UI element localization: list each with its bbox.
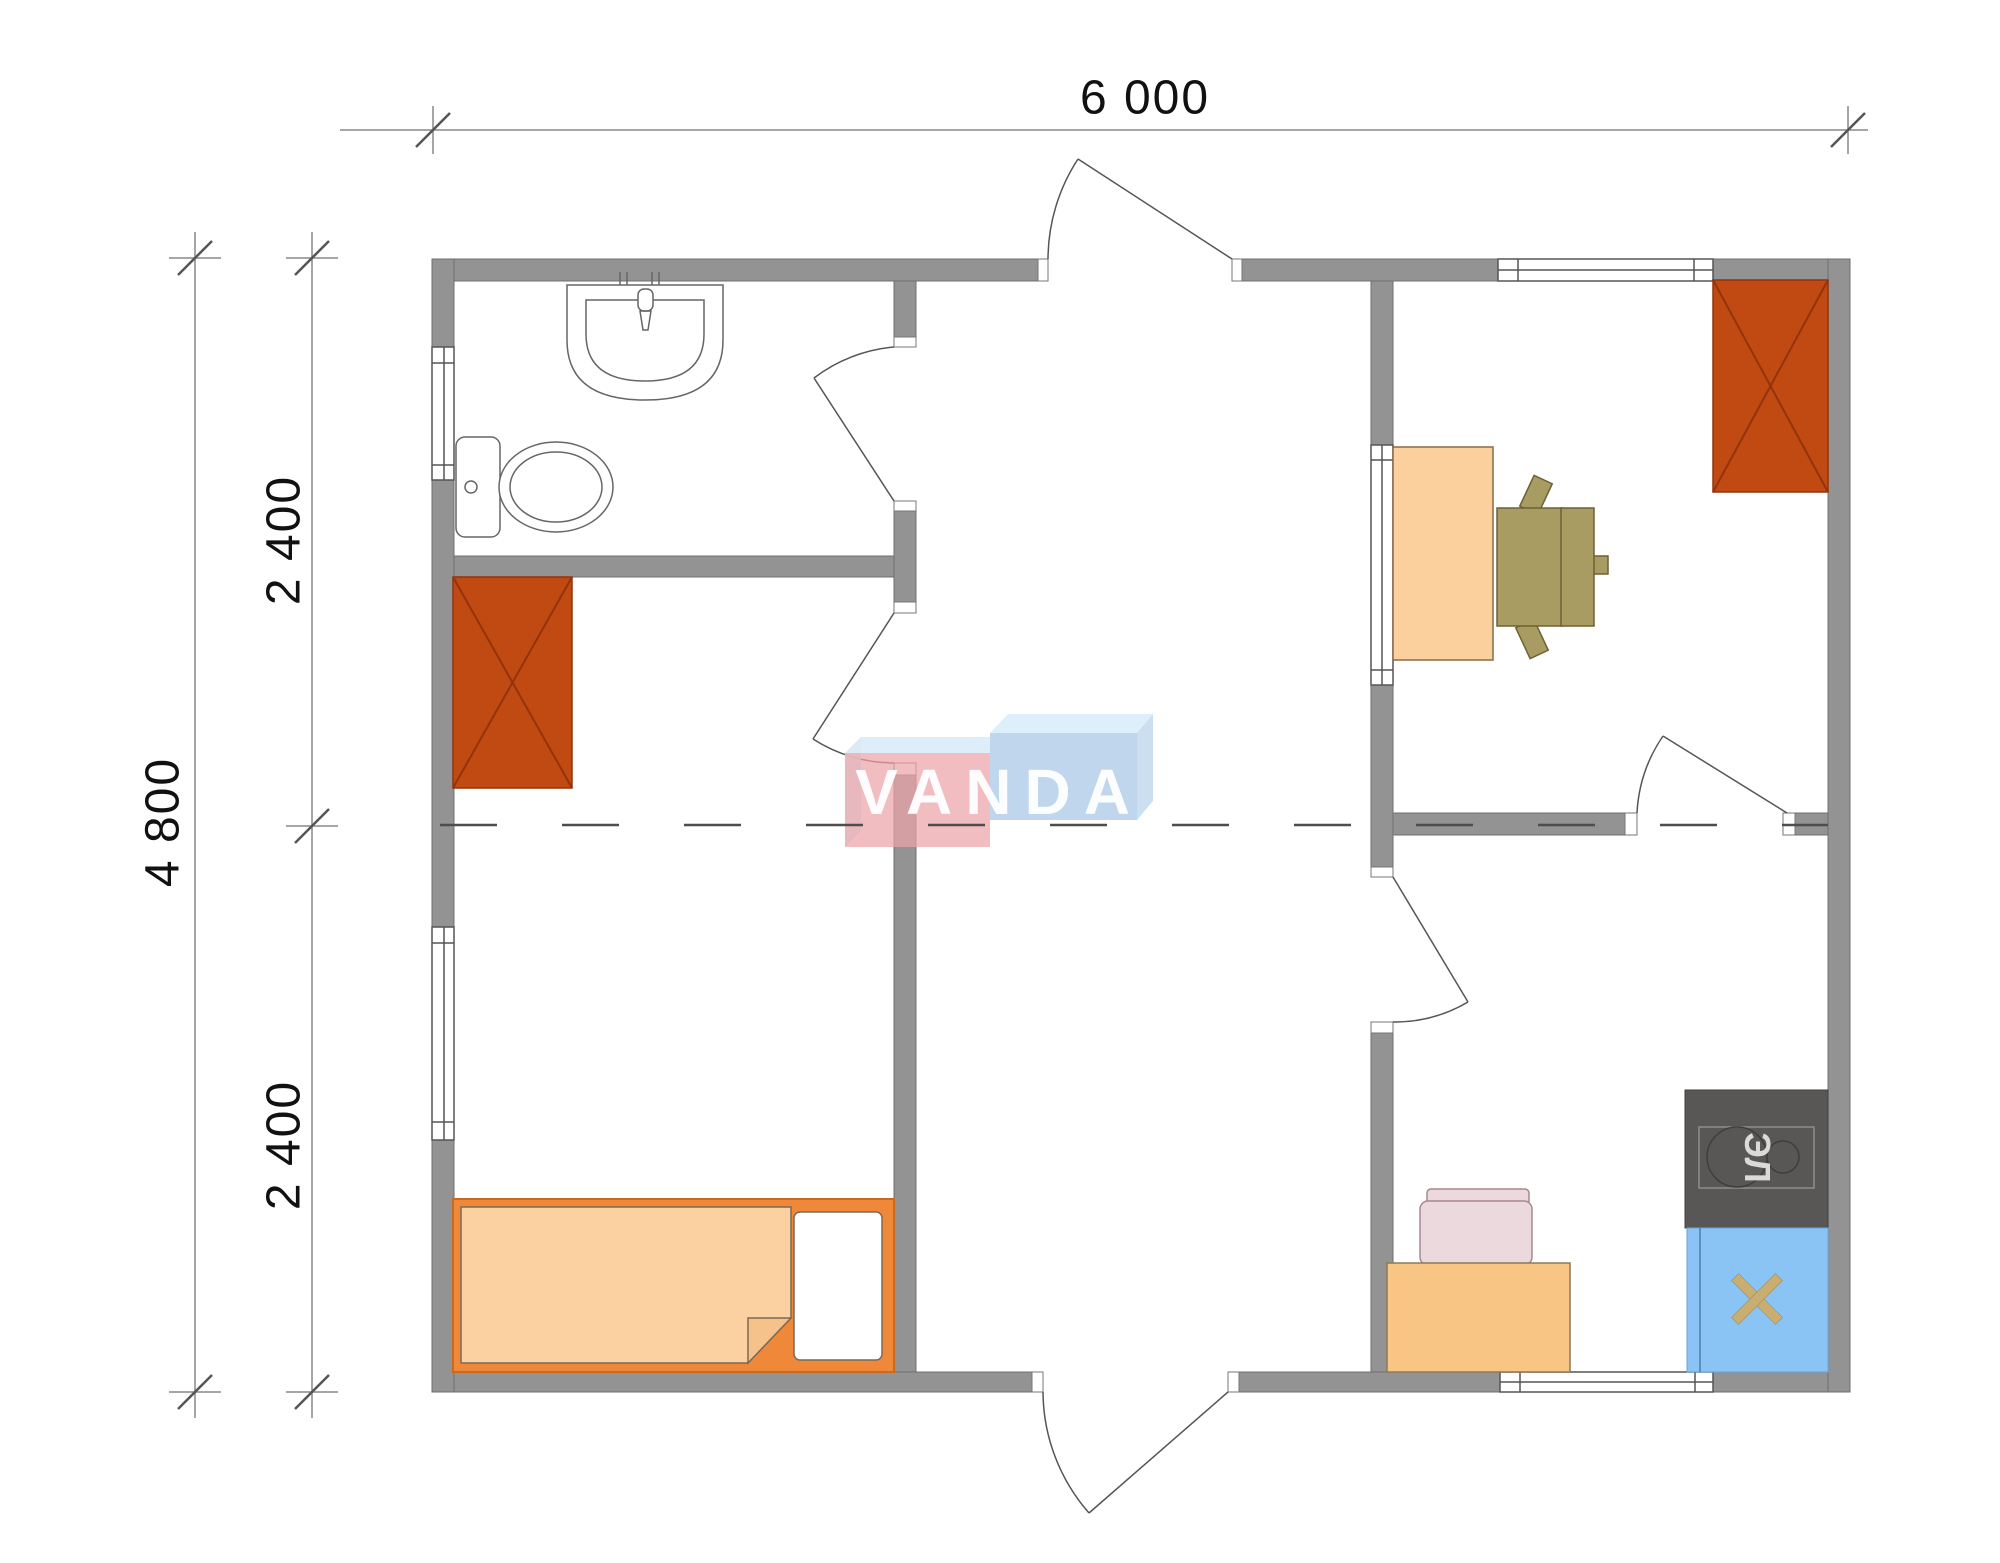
- wall-segment: [894, 775, 916, 1372]
- kitchen-sink-icon: [1687, 1228, 1828, 1372]
- pillow-icon: [794, 1212, 882, 1360]
- wall-segment: [1828, 259, 1850, 1392]
- bedroom-door: [813, 613, 894, 763]
- washbasin-icon: [567, 272, 723, 400]
- dimension-height-lower-label: 2 400: [257, 1080, 312, 1210]
- kitchen-office-door: [1637, 736, 1787, 813]
- toilet-icon: [456, 437, 613, 537]
- dimension-ticks: [178, 113, 1865, 1409]
- wardrobe-x-icon: [453, 577, 572, 788]
- wall-segment: [432, 480, 454, 927]
- window-icon: [1498, 259, 1713, 281]
- floor-plan: VANDA 6 000 4 800 2 400 2 400 ЭЛ: [0, 0, 2000, 1563]
- dimension-lines: [169, 106, 1868, 1418]
- wardrobe-x-icon: [1713, 280, 1828, 492]
- window-icon: [1371, 445, 1393, 685]
- bed-icon: [453, 1199, 894, 1372]
- desk-icon: [1393, 447, 1493, 660]
- bathroom-door: [814, 347, 894, 501]
- blanket: [461, 1207, 791, 1363]
- wall-segment: [894, 511, 916, 602]
- wall-segment: [894, 281, 916, 337]
- entry-door-bottom: [1043, 1392, 1228, 1513]
- dimension-height-upper-label: 2 400: [257, 475, 312, 605]
- office-chair-icon: [1497, 475, 1608, 658]
- door-jambs: [894, 259, 1795, 1392]
- wall-segment: [1371, 281, 1393, 445]
- kitchen-chair-icon: [1420, 1189, 1532, 1265]
- dimension-height-total-label: 4 800: [136, 757, 191, 887]
- wall-segment: [432, 259, 1038, 281]
- wall-segment: [1795, 813, 1828, 835]
- wall-segment: [1242, 259, 1498, 281]
- kitchen-table-icon: [1387, 1263, 1570, 1372]
- kitchen-hall-door: [1393, 877, 1468, 1022]
- dimension-width-label: 6 000: [1080, 71, 1210, 126]
- floor-plan-drawing: [0, 0, 2000, 1563]
- window-icon: [432, 927, 454, 1140]
- wall-segment: [1239, 1372, 1500, 1392]
- wall-segment: [1393, 813, 1625, 835]
- window-icon: [432, 347, 454, 480]
- wall-segment: [454, 556, 894, 577]
- stove-label: ЭЛ: [1736, 1132, 1778, 1184]
- wall-segment: [1371, 685, 1393, 867]
- wall-segment: [432, 1372, 1032, 1392]
- entry-door-top: [1048, 159, 1232, 259]
- wall-segment: [432, 259, 454, 347]
- window-icon: [1500, 1372, 1713, 1392]
- door-swings: [813, 159, 1787, 1513]
- wall-segment: [432, 1140, 454, 1392]
